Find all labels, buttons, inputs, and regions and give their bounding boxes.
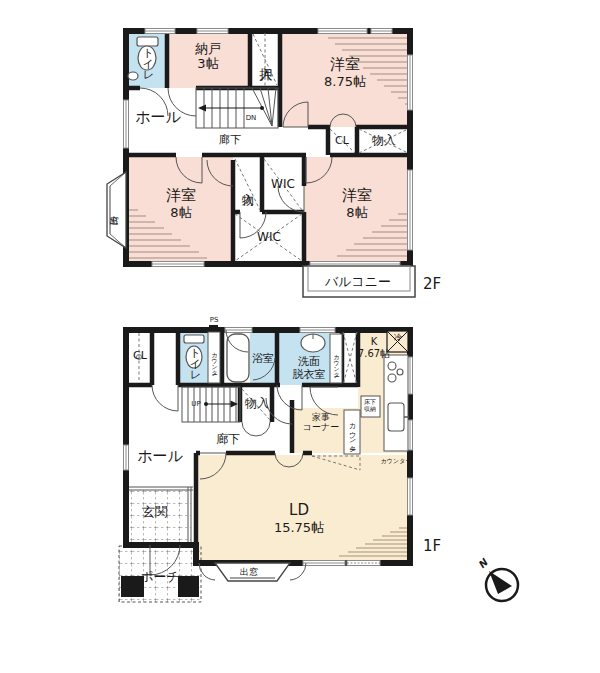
label-2f-hall: ホール: [135, 109, 181, 126]
label-1f-counter-toilet: カウンター: [211, 348, 218, 370]
label-1f-closet: CL: [133, 350, 147, 363]
label-2f-corridor: 廊下: [219, 134, 241, 147]
label-2f-floor: 2F: [423, 276, 441, 293]
label-1f-storage: 物入: [245, 397, 269, 411]
label-1f-bath: 浴室: [252, 353, 274, 366]
line2: 収納: [364, 405, 376, 412]
label-2f-wic-top: WIC: [271, 178, 295, 192]
label-2f-closet: CL: [335, 135, 349, 148]
room-size: 7.67帖: [358, 347, 390, 358]
bathtub-icon: [227, 334, 249, 382]
bay-window-2f: [107, 172, 126, 248]
label-1f-counter-kaji: カウンター: [348, 419, 356, 446]
label-2f-nando: 納戸3帖: [195, 42, 221, 72]
label-1f-toilet: トイレ: [188, 340, 201, 375]
label-1f-kitchen: K7.67帖: [358, 336, 390, 359]
label-1f-kaji-corner: 家事コーナー: [303, 412, 339, 433]
room-name-line2: 脱衣室: [293, 368, 326, 381]
room-size: 3帖: [197, 56, 218, 71]
label-1f-floor: 1F: [423, 538, 441, 555]
label-1f-ps: PS: [210, 316, 219, 324]
label-1f-washroom: 洗面脱衣室: [293, 356, 326, 381]
line2: コーナー: [303, 422, 339, 432]
room-size: 8帖: [170, 205, 191, 220]
label-1f-floor-storage: 床下収納: [364, 399, 376, 413]
room-name-line1: 洗面: [298, 355, 320, 368]
label-2f-balcony: バルコニー: [325, 275, 391, 290]
label-2f-dn: DN: [246, 114, 257, 122]
label-2f-western-8-right: 洋室8帖: [342, 187, 372, 222]
label-2f-western-875: 洋室8.75帖: [324, 56, 366, 91]
porch-pillar-right: [178, 576, 199, 597]
label-1f-counter-wash: カウンター: [333, 350, 340, 372]
compass-icon: [486, 569, 518, 601]
label-2f-wic-bottom: WIC: [257, 231, 281, 245]
label-1f-ld: LD15.75帖: [274, 502, 324, 537]
room-name: K: [371, 336, 378, 347]
room-size: 8帖: [346, 205, 367, 220]
floor-plan-page: トイレ 納戸3帖 押入 洋室8.75帖 ホール 廊下 DN CL 物入 出窓 洋…: [0, 0, 600, 673]
label-2f-storage-right: 物入: [372, 134, 396, 148]
label-2f-western-8-left: 洋室8帖: [166, 187, 196, 222]
line1: 家事: [312, 412, 330, 422]
label-1f-up: UP: [191, 400, 200, 408]
ps-box: [209, 325, 218, 331]
label-1f-hall: ホール: [137, 448, 183, 465]
room-name: 洋室: [342, 186, 372, 204]
room-name: 洋室: [166, 186, 196, 204]
sink-icon: [301, 334, 325, 352]
label-1f-counter-kitchen: カウンター: [381, 458, 412, 465]
label-1f-fridge: 冷: [394, 333, 402, 342]
label-1f-corridor: 廊下: [216, 433, 240, 447]
room-name: 洋室: [330, 55, 360, 73]
label-1f-bay-window: 出窓: [240, 567, 258, 577]
room-size: 8.75帖: [324, 74, 366, 89]
label-1f-porch: ポーチ: [140, 570, 180, 585]
room-name: 納戸: [195, 41, 221, 56]
stairs-2f: [196, 88, 278, 128]
room-size: 15.75帖: [274, 520, 324, 535]
label-2f-toilet: トイレ: [141, 40, 154, 75]
label-1f-genkan: 玄関: [142, 505, 168, 520]
room-name: LD: [289, 501, 309, 519]
floor-plan-drawing: [0, 0, 600, 673]
